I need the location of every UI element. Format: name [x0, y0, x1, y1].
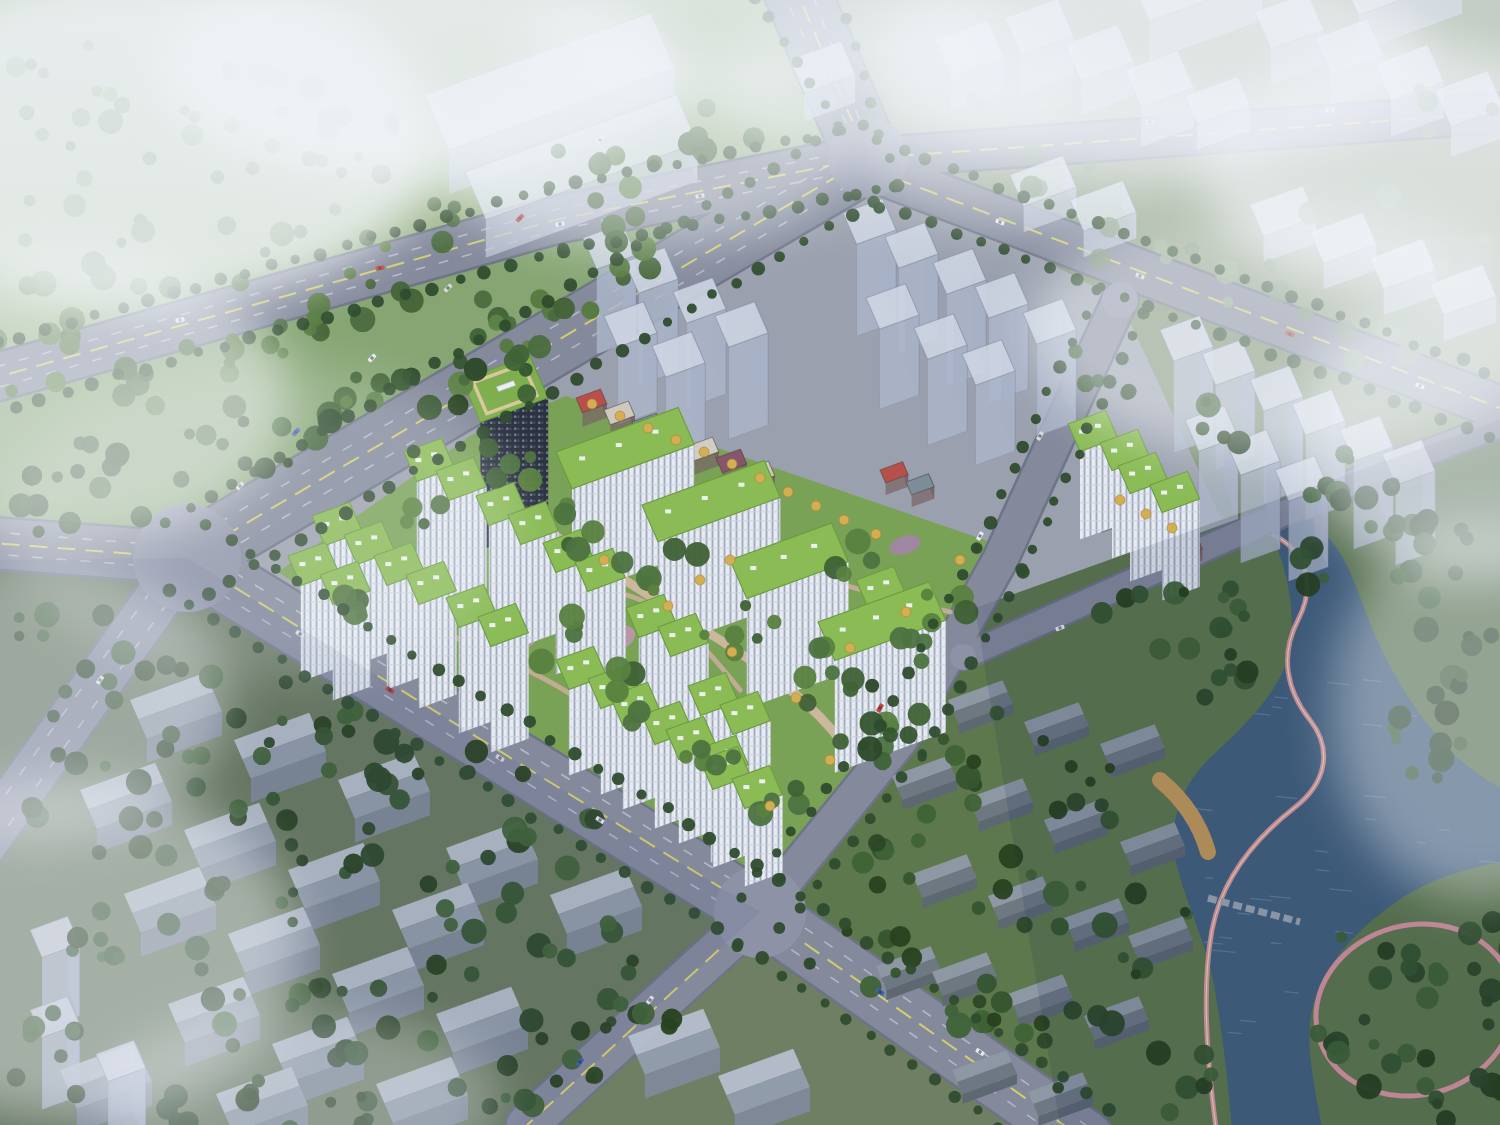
street-tree: [524, 715, 537, 728]
street-tree: [564, 278, 577, 291]
tree: [911, 833, 926, 848]
tree: [679, 750, 693, 764]
street-tree: [795, 891, 805, 901]
street-tree: [840, 1014, 851, 1025]
rooftop-unit: [883, 580, 889, 584]
autumn-tree: [791, 693, 801, 703]
tree: [863, 552, 880, 569]
rooftop-unit: [715, 686, 721, 690]
autumn-tree: [839, 515, 849, 525]
tree: [559, 603, 585, 629]
street-tree: [1015, 563, 1028, 576]
street-tree: [1031, 414, 1041, 424]
rooftop-unit: [652, 430, 658, 434]
street-tree: [588, 267, 599, 278]
street-tree: [545, 735, 556, 746]
street-tree: [407, 650, 416, 659]
street-tree: [916, 643, 925, 652]
tree: [685, 542, 710, 567]
street-tree: [887, 695, 899, 707]
tree: [605, 679, 629, 703]
facade: [928, 345, 967, 445]
autumn-tree: [765, 801, 775, 811]
street-tree: [409, 375, 420, 386]
street-tree: [703, 832, 716, 845]
rooftop-unit: [1161, 491, 1167, 495]
autumn-tree: [727, 647, 737, 657]
tree: [914, 653, 930, 669]
rooftop-unit: [505, 617, 511, 621]
tree: [528, 335, 551, 358]
street-tree: [906, 964, 917, 975]
street-tree: [1016, 441, 1029, 454]
tree: [752, 633, 763, 644]
street-tree: [663, 317, 672, 326]
tree: [966, 754, 981, 769]
street-tree: [1043, 517, 1052, 526]
rooftop-unit: [906, 603, 912, 607]
rooftop-unit: [599, 685, 605, 689]
street-tree: [882, 793, 892, 803]
street-tree: [1036, 1056, 1048, 1068]
tree: [836, 566, 852, 582]
rooftop-unit: [747, 705, 753, 709]
street-tree: [907, 1059, 917, 1069]
rooftop-unit: [669, 715, 675, 719]
tree: [787, 780, 804, 797]
tree: [553, 503, 576, 526]
street-tree: [772, 873, 786, 887]
street-tree: [971, 542, 983, 554]
tree: [987, 1012, 1002, 1027]
street-tree: [636, 789, 646, 799]
tree: [956, 765, 981, 790]
tree: [808, 637, 829, 658]
street-tree: [772, 848, 781, 857]
autumn-tree: [599, 555, 609, 565]
tree: [890, 967, 901, 978]
tree: [908, 703, 931, 726]
tree: [991, 991, 1013, 1013]
rooftop-unit: [731, 711, 737, 715]
street-tree: [949, 1091, 961, 1103]
tree: [566, 537, 591, 562]
street-tree: [795, 903, 806, 914]
street-tree: [348, 303, 362, 317]
street-tree: [682, 818, 695, 831]
tree: [581, 301, 599, 319]
autumn-tree: [825, 755, 835, 765]
rooftop-unit: [702, 496, 708, 500]
street-tree: [929, 726, 941, 738]
tree: [954, 600, 978, 624]
street-tree: [928, 618, 939, 629]
street-tree: [477, 266, 491, 280]
tree: [804, 957, 816, 969]
rooftop-unit: [1095, 424, 1101, 428]
tree: [344, 267, 356, 279]
street-tree: [777, 971, 788, 982]
tree: [977, 973, 997, 993]
street-tree: [859, 740, 868, 749]
tree: [663, 538, 686, 561]
street-tree: [1028, 545, 1037, 554]
rooftop-unit: [840, 628, 846, 632]
rooftop-unit: [1127, 443, 1133, 447]
tree: [972, 901, 986, 915]
aerial-rendering: [0, 0, 1500, 1125]
street-tree: [1015, 1043, 1028, 1056]
tree: [845, 529, 871, 555]
autumn-tree: [955, 555, 965, 565]
street-tree: [590, 357, 602, 369]
tree: [964, 794, 982, 812]
street-tree: [751, 262, 765, 276]
tree: [767, 615, 782, 630]
street-tree: [1075, 450, 1084, 459]
tree: [365, 279, 375, 289]
rooftop-unit: [653, 608, 659, 612]
street-tree: [838, 761, 849, 772]
facade: [880, 315, 919, 409]
car-roof: [378, 266, 382, 270]
street-tree: [949, 995, 959, 1005]
tree: [661, 1009, 682, 1030]
street-tree: [929, 983, 939, 993]
rooftop-unit: [699, 692, 705, 696]
autumn-tree: [811, 501, 821, 511]
street-tree: [918, 752, 927, 761]
tree: [852, 852, 874, 874]
street-tree: [321, 311, 334, 324]
street-tree: [994, 1028, 1003, 1037]
street-tree: [499, 320, 511, 332]
street-tree: [964, 656, 978, 670]
street-tree: [1010, 463, 1021, 474]
street-tree: [519, 306, 531, 318]
street-tree: [475, 690, 486, 701]
tree: [993, 879, 1013, 899]
tree: [692, 740, 711, 759]
rooftop-unit: [665, 509, 671, 513]
tree: [917, 804, 937, 824]
street-tree: [902, 666, 915, 679]
street-tree: [500, 410, 513, 423]
autumn-tree: [727, 459, 737, 469]
tree: [464, 358, 487, 381]
facade: [491, 633, 529, 753]
street-tree: [996, 489, 1006, 499]
tree: [869, 876, 887, 894]
street-tree: [984, 516, 998, 530]
street-tree: [829, 858, 841, 870]
rooftop-unit: [586, 568, 592, 572]
tree: [868, 834, 886, 852]
street-tree: [821, 999, 830, 1008]
street-tree: [786, 827, 796, 837]
rooftop-unit: [519, 521, 525, 525]
street-tree: [944, 594, 954, 604]
rooftop-unit: [579, 456, 585, 460]
street-tree: [942, 704, 954, 716]
street-tree: [817, 903, 830, 916]
autumn-tree: [725, 555, 735, 565]
street-tree: [501, 703, 514, 716]
autumn-tree: [699, 447, 709, 457]
tree: [865, 679, 879, 693]
rooftop-unit: [685, 627, 691, 631]
tree: [945, 1004, 959, 1018]
rooftop-unit: [743, 785, 749, 789]
rooftop-unit: [759, 779, 765, 783]
tree: [825, 665, 840, 680]
autumn-tree: [1167, 523, 1177, 533]
street-tree: [867, 1031, 876, 1040]
autumn-tree: [871, 529, 881, 539]
tree: [1014, 1023, 1034, 1043]
rooftop-unit: [873, 615, 879, 619]
tree: [945, 745, 966, 766]
tree: [586, 1067, 603, 1084]
tree: [799, 694, 817, 712]
tree: [699, 630, 709, 640]
street-tree: [731, 278, 742, 289]
tree: [903, 872, 916, 885]
tree: [623, 713, 642, 732]
rooftop-unit: [637, 614, 643, 618]
rooftop-unit: [750, 566, 756, 570]
rooftop-unit: [669, 633, 675, 637]
autumn-tree: [643, 423, 653, 433]
rooftop-unit: [677, 736, 683, 740]
tree: [706, 754, 727, 775]
tree: [793, 666, 816, 689]
fog-cloud: [0, 360, 520, 680]
autumn-tree: [587, 399, 597, 409]
rooftop-unit: [693, 730, 699, 734]
tree: [529, 648, 555, 674]
street-tree: [881, 951, 894, 964]
tree: [605, 656, 631, 682]
tree: [900, 726, 918, 744]
street-tree: [568, 747, 582, 761]
street-tree: [731, 941, 743, 953]
rooftop-unit: [867, 586, 873, 590]
street-tree: [525, 401, 534, 410]
rooftop-unit: [621, 702, 627, 706]
tree: [726, 749, 742, 765]
street-tree: [663, 802, 674, 813]
rooftop-unit: [811, 544, 817, 548]
street-tree: [433, 663, 446, 676]
tree: [740, 600, 751, 611]
street-tree: [729, 848, 740, 859]
rooftop-unit: [583, 660, 589, 664]
autumn-tree: [695, 575, 705, 585]
street-tree: [797, 983, 807, 993]
street-tree: [425, 283, 439, 297]
street-tree: [428, 357, 440, 369]
autumn-tree: [755, 473, 765, 483]
rooftop-unit: [489, 623, 495, 627]
top-haze: [0, 0, 1500, 260]
tree: [504, 350, 525, 371]
street-tree: [1060, 472, 1071, 483]
rooftop-unit: [738, 483, 744, 487]
street-tree: [773, 922, 785, 934]
street-tree: [1081, 422, 1093, 434]
street-tree: [884, 1045, 895, 1056]
street-tree: [453, 348, 464, 359]
tree: [474, 290, 492, 308]
tree: [517, 384, 536, 403]
rooftop-unit: [567, 666, 573, 670]
street-tree: [616, 344, 630, 358]
street-tree: [821, 783, 833, 795]
street-tree: [456, 274, 466, 284]
street-tree: [896, 771, 908, 783]
street-tree: [1042, 387, 1051, 396]
autumn-tree: [1141, 509, 1151, 519]
autumn-tree: [901, 607, 911, 617]
street-tree: [687, 303, 697, 313]
street-tree: [957, 569, 969, 581]
street-tree: [806, 807, 816, 817]
tree: [973, 995, 987, 1009]
street-tree: [1049, 497, 1058, 506]
autumn-tree: [845, 643, 855, 653]
rooftop-unit: [1111, 449, 1117, 453]
street-tree: [707, 289, 717, 299]
tree: [843, 681, 859, 697]
autumn-tree: [783, 487, 793, 497]
masterplan-scene: [0, 0, 1500, 1125]
autumn-tree: [671, 435, 681, 445]
street-tree: [847, 835, 859, 847]
street-tree: [453, 675, 465, 687]
tree: [611, 551, 633, 573]
facade: [976, 371, 1015, 465]
street-tree: [813, 880, 823, 890]
street-tree: [504, 259, 518, 273]
tree: [648, 584, 660, 596]
street-tree: [570, 373, 583, 386]
street-tree: [860, 936, 874, 950]
tree: [518, 468, 542, 492]
facade: [729, 333, 768, 439]
rooftop-unit: [1177, 485, 1183, 489]
street-tree: [865, 813, 876, 824]
street-tree: [954, 680, 967, 693]
autumn-tree: [663, 601, 673, 611]
rooftop-unit: [653, 721, 659, 725]
tree: [832, 733, 849, 750]
tree: [860, 976, 882, 998]
tree: [524, 451, 536, 463]
autumn-tree: [615, 411, 625, 421]
street-tree: [546, 386, 560, 400]
street-tree: [1044, 262, 1056, 274]
rooftop-unit: [535, 515, 541, 519]
rooftop-unit: [554, 549, 560, 553]
street-tree: [593, 764, 603, 774]
street-tree: [839, 918, 851, 930]
street-tree: [372, 295, 384, 307]
rooftop-unit: [1145, 466, 1151, 470]
street-tree: [755, 951, 769, 965]
rooftop-unit: [1129, 472, 1135, 476]
tree: [921, 589, 933, 601]
autumn-tree: [1115, 495, 1125, 505]
street-tree: [542, 295, 555, 308]
street-tree: [752, 867, 763, 878]
tree: [725, 625, 745, 645]
street-tree: [639, 333, 651, 345]
rooftop-unit: [616, 443, 622, 447]
tree: [890, 926, 911, 947]
rooftop-unit: [637, 696, 643, 700]
rooftop-unit: [781, 555, 787, 559]
tree: [553, 297, 575, 319]
street-tree: [973, 1105, 982, 1114]
street-tree: [612, 772, 625, 785]
street-tree: [297, 317, 310, 330]
street-tree: [971, 1013, 981, 1023]
street-tree: [929, 1073, 941, 1085]
street-tree: [473, 334, 484, 345]
street-tree: [400, 288, 412, 300]
street-tree: [874, 719, 887, 732]
street-tree: [272, 324, 283, 335]
